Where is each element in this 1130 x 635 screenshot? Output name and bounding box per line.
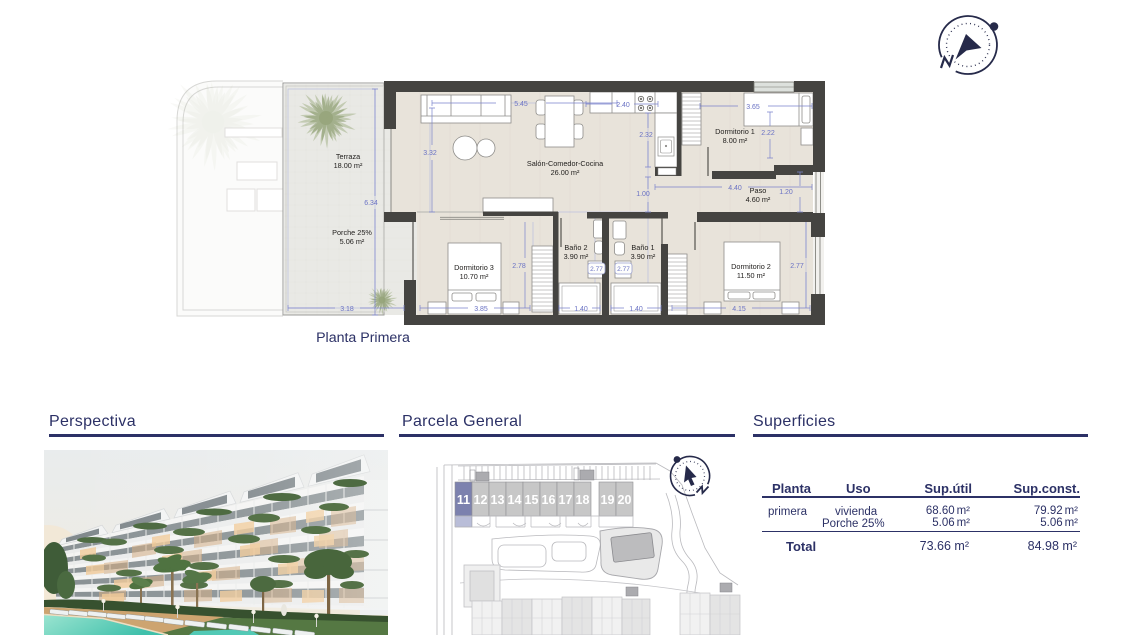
svg-text:Terraza: Terraza xyxy=(336,152,361,161)
svg-text:17: 17 xyxy=(559,493,573,507)
svg-text:2.78: 2.78 xyxy=(512,263,526,270)
svg-text:Paso: Paso xyxy=(750,186,767,195)
svg-text:14: 14 xyxy=(508,493,522,507)
svg-text:Dormitorio 1: Dormitorio 1 xyxy=(715,127,755,136)
svg-text:4.40: 4.40 xyxy=(728,185,742,192)
svg-text:Baño 1: Baño 1 xyxy=(631,243,654,252)
svg-text:11: 11 xyxy=(457,493,470,507)
svg-text:26.00 m²: 26.00 m² xyxy=(551,168,580,177)
svg-text:12: 12 xyxy=(474,493,488,507)
svg-text:2.40: 2.40 xyxy=(616,102,630,109)
svg-text:Planta Primera: Planta Primera xyxy=(316,330,410,346)
svg-text:11.50 m²: 11.50 m² xyxy=(737,271,766,280)
svg-text:10.70 m²: 10.70 m² xyxy=(460,272,489,281)
svg-text:3.90 m²: 3.90 m² xyxy=(631,252,656,261)
svg-text:2.22: 2.22 xyxy=(761,130,775,137)
svg-text:15: 15 xyxy=(525,493,539,507)
svg-text:1.40: 1.40 xyxy=(574,306,588,313)
svg-text:2.32: 2.32 xyxy=(639,132,653,139)
svg-text:13: 13 xyxy=(491,493,505,507)
svg-text:8.00 m²: 8.00 m² xyxy=(723,136,748,145)
svg-text:3.90 m²: 3.90 m² xyxy=(564,252,589,261)
svg-text:18: 18 xyxy=(576,493,590,507)
svg-text:2.77: 2.77 xyxy=(790,263,804,270)
svg-text:5.06 m²: 5.06 m² xyxy=(340,237,365,246)
svg-text:3.65: 3.65 xyxy=(746,104,760,111)
svg-text:1.00: 1.00 xyxy=(636,191,650,198)
svg-text:2.77: 2.77 xyxy=(617,266,630,273)
svg-text:Porche 25%: Porche 25% xyxy=(332,228,372,237)
svg-text:16: 16 xyxy=(542,493,556,507)
svg-text:2.77: 2.77 xyxy=(590,266,603,273)
svg-text:4.15: 4.15 xyxy=(732,306,746,313)
svg-text:4.60 m²: 4.60 m² xyxy=(746,195,771,204)
svg-text:Dormitorio 2: Dormitorio 2 xyxy=(731,262,771,271)
svg-text:19: 19 xyxy=(601,493,615,507)
svg-text:6.34: 6.34 xyxy=(364,200,378,207)
svg-text:Salón-Comedor-Cocina: Salón-Comedor-Cocina xyxy=(527,159,604,168)
svg-text:5.45: 5.45 xyxy=(514,101,528,108)
svg-text:20: 20 xyxy=(618,493,632,507)
svg-text:18.00 m²: 18.00 m² xyxy=(334,161,363,170)
svg-text:1.20: 1.20 xyxy=(779,189,793,196)
svg-text:Dormitorio 3: Dormitorio 3 xyxy=(454,263,494,272)
svg-text:3.32: 3.32 xyxy=(423,150,437,157)
svg-text:3.85: 3.85 xyxy=(474,306,488,313)
svg-text:1.40: 1.40 xyxy=(629,306,643,313)
svg-text:3.18: 3.18 xyxy=(340,306,354,313)
svg-text:Baño 2: Baño 2 xyxy=(564,243,587,252)
